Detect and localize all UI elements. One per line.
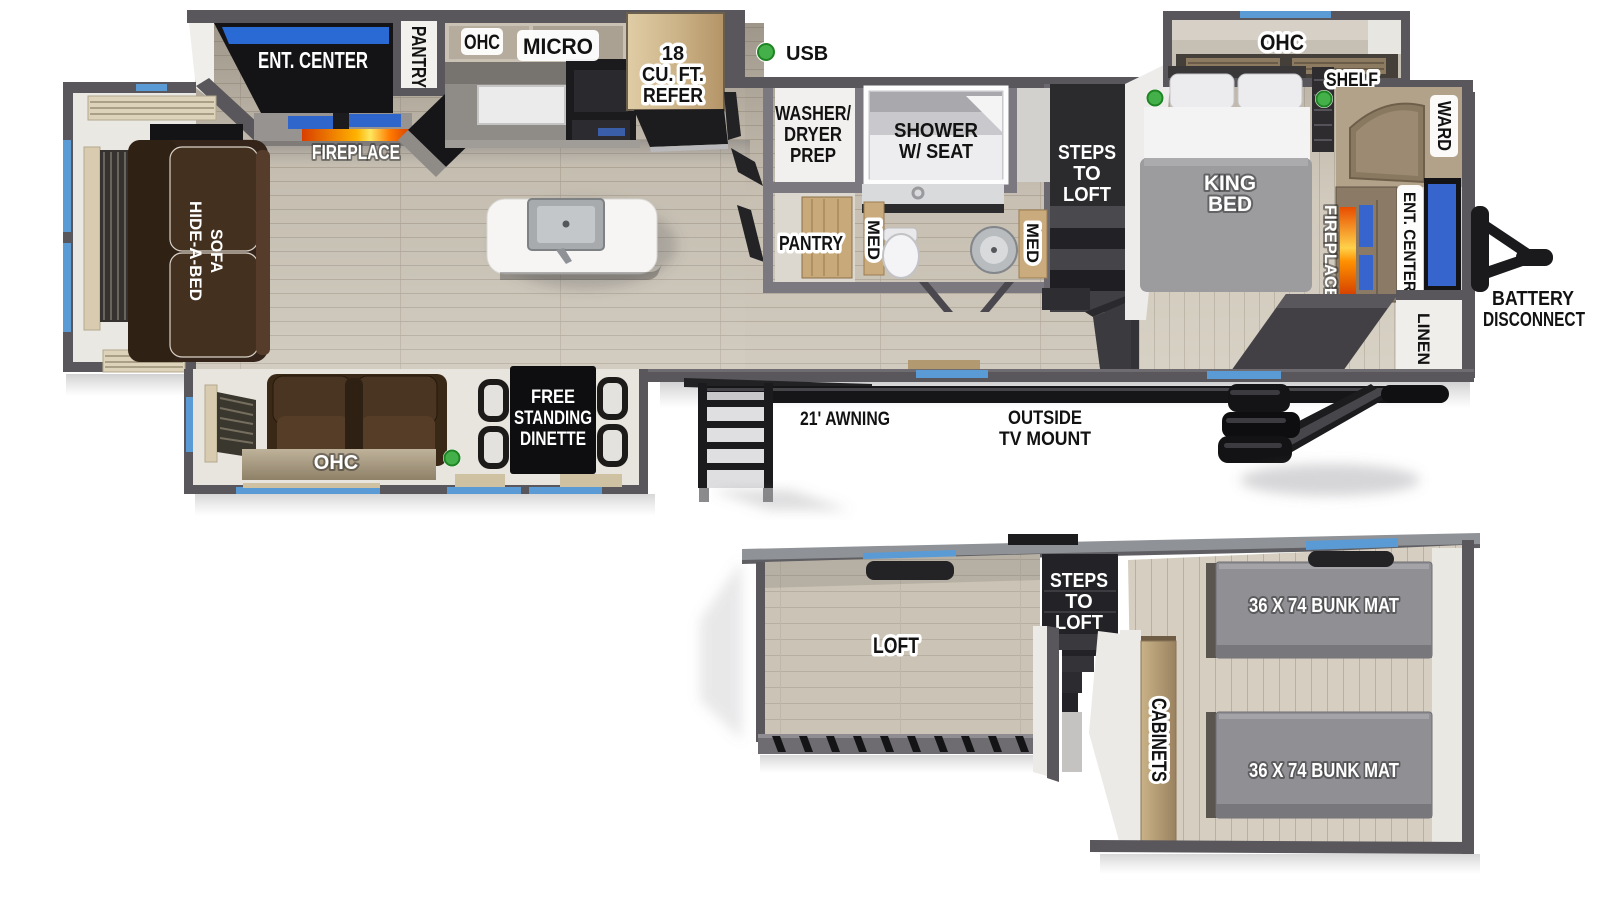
- svg-text:HIDE-A-BED: HIDE-A-BED: [186, 201, 205, 301]
- svg-text:FREE: FREE: [531, 387, 575, 408]
- svg-text:OHC: OHC: [314, 452, 358, 474]
- svg-text:DISCONNECT: DISCONNECT: [1483, 309, 1585, 331]
- svg-text:BED: BED: [1208, 193, 1252, 216]
- svg-text:18: 18: [662, 43, 684, 65]
- svg-text:MED: MED: [1023, 223, 1042, 263]
- svg-text:STANDING: STANDING: [514, 408, 592, 429]
- svg-text:KING: KING: [1204, 172, 1256, 195]
- svg-text:USB: USB: [786, 43, 828, 65]
- svg-text:WASHER/: WASHER/: [775, 103, 851, 125]
- svg-text:TO: TO: [1073, 163, 1100, 185]
- svg-text:SOFA: SOFA: [207, 229, 226, 273]
- svg-text:OUTSIDE: OUTSIDE: [1008, 408, 1082, 429]
- svg-text:ENT. CENTER: ENT. CENTER: [258, 47, 368, 73]
- svg-text:BATTERY: BATTERY: [1492, 288, 1575, 310]
- svg-text:36 X 74 BUNK MAT: 36 X 74 BUNK MAT: [1249, 595, 1399, 617]
- svg-text:21' AWNING: 21' AWNING: [800, 409, 890, 430]
- svg-text:ENT. CENTER: ENT. CENTER: [1400, 192, 1419, 292]
- svg-text:LOFT: LOFT: [1055, 612, 1103, 634]
- svg-text:STEPS: STEPS: [1058, 142, 1116, 164]
- svg-text:OHC: OHC: [1260, 30, 1304, 55]
- svg-text:PANTRY: PANTRY: [779, 233, 844, 255]
- svg-text:FIREPLACE: FIREPLACE: [1321, 205, 1340, 299]
- svg-text:SHOWER: SHOWER: [894, 120, 979, 142]
- svg-text:LOFT: LOFT: [1063, 184, 1111, 206]
- svg-text:REFER: REFER: [643, 85, 703, 107]
- svg-text:DRYER: DRYER: [784, 124, 842, 146]
- svg-text:LINEN: LINEN: [1414, 313, 1433, 365]
- svg-text:CU. FT.: CU. FT.: [642, 64, 704, 86]
- svg-text:36 X 74 BUNK MAT: 36 X 74 BUNK MAT: [1249, 760, 1399, 782]
- svg-text:MICRO: MICRO: [523, 34, 593, 59]
- svg-text:W/ SEAT: W/ SEAT: [899, 141, 973, 163]
- svg-text:CABINETS: CABINETS: [1147, 698, 1170, 782]
- svg-text:WARD: WARD: [1434, 101, 1454, 151]
- svg-text:TV MOUNT: TV MOUNT: [999, 429, 1091, 450]
- svg-text:PREP: PREP: [790, 145, 836, 167]
- svg-text:PANTRY: PANTRY: [407, 26, 429, 89]
- svg-text:FIREPLACE: FIREPLACE: [312, 142, 400, 164]
- svg-text:STEPS: STEPS: [1050, 570, 1108, 592]
- svg-text:OHC: OHC: [464, 31, 500, 54]
- svg-text:TO: TO: [1065, 591, 1092, 613]
- svg-text:DINETTE: DINETTE: [520, 429, 586, 450]
- svg-text:MED: MED: [864, 220, 883, 260]
- svg-text:LOFT: LOFT: [873, 633, 919, 658]
